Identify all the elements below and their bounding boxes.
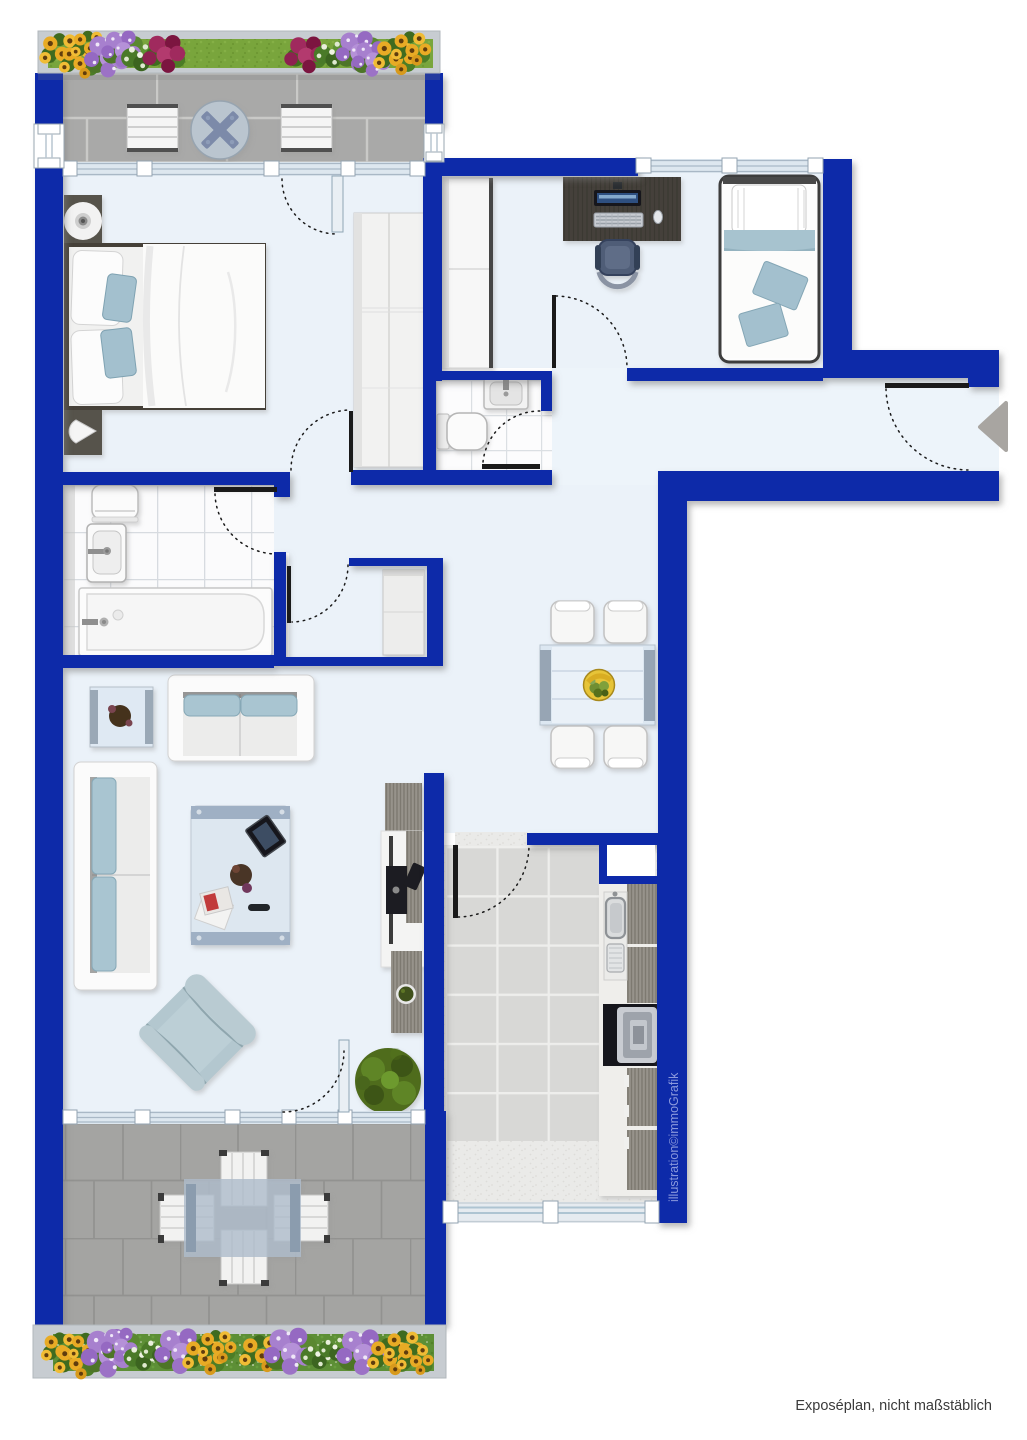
svg-text:illustration©immoGrafik: illustration©immoGrafik [667, 1072, 681, 1202]
svg-text:Exposéplan, nicht maßstäblich: Exposéplan, nicht maßstäblich [795, 1398, 992, 1414]
